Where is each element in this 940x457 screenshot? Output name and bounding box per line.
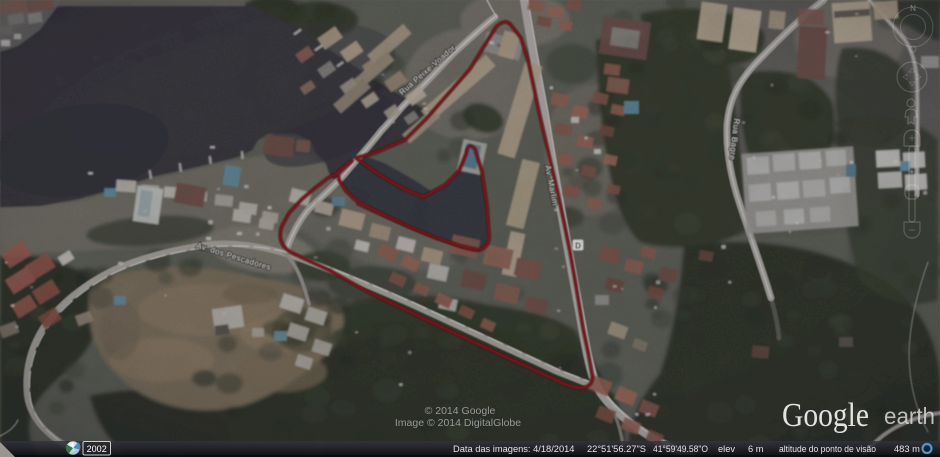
svg-text:© 2014 Google: © 2014 Google	[425, 405, 496, 417]
svg-text:41°59'49.58"O: 41°59'49.58"O	[653, 444, 708, 454]
svg-text:altitude do ponto de visão: altitude do ponto de visão	[779, 444, 876, 454]
svg-text:N: N	[910, 4, 916, 13]
svg-text:earth: earth	[884, 403, 935, 429]
svg-text:483 m: 483 m	[894, 444, 920, 454]
svg-text:22°51'56.27"S: 22°51'56.27"S	[587, 444, 646, 454]
svg-text:Data das imagens: 4/18/2014: Data das imagens: 4/18/2014	[453, 444, 574, 454]
svg-text:6 m: 6 m	[748, 444, 764, 454]
svg-text:Image © 2014 DigitalGlobe: Image © 2014 DigitalGlobe	[395, 417, 521, 429]
svg-text:2002: 2002	[87, 444, 107, 454]
svg-text:elev: elev	[718, 444, 735, 454]
svg-text:Google: Google	[782, 397, 869, 434]
